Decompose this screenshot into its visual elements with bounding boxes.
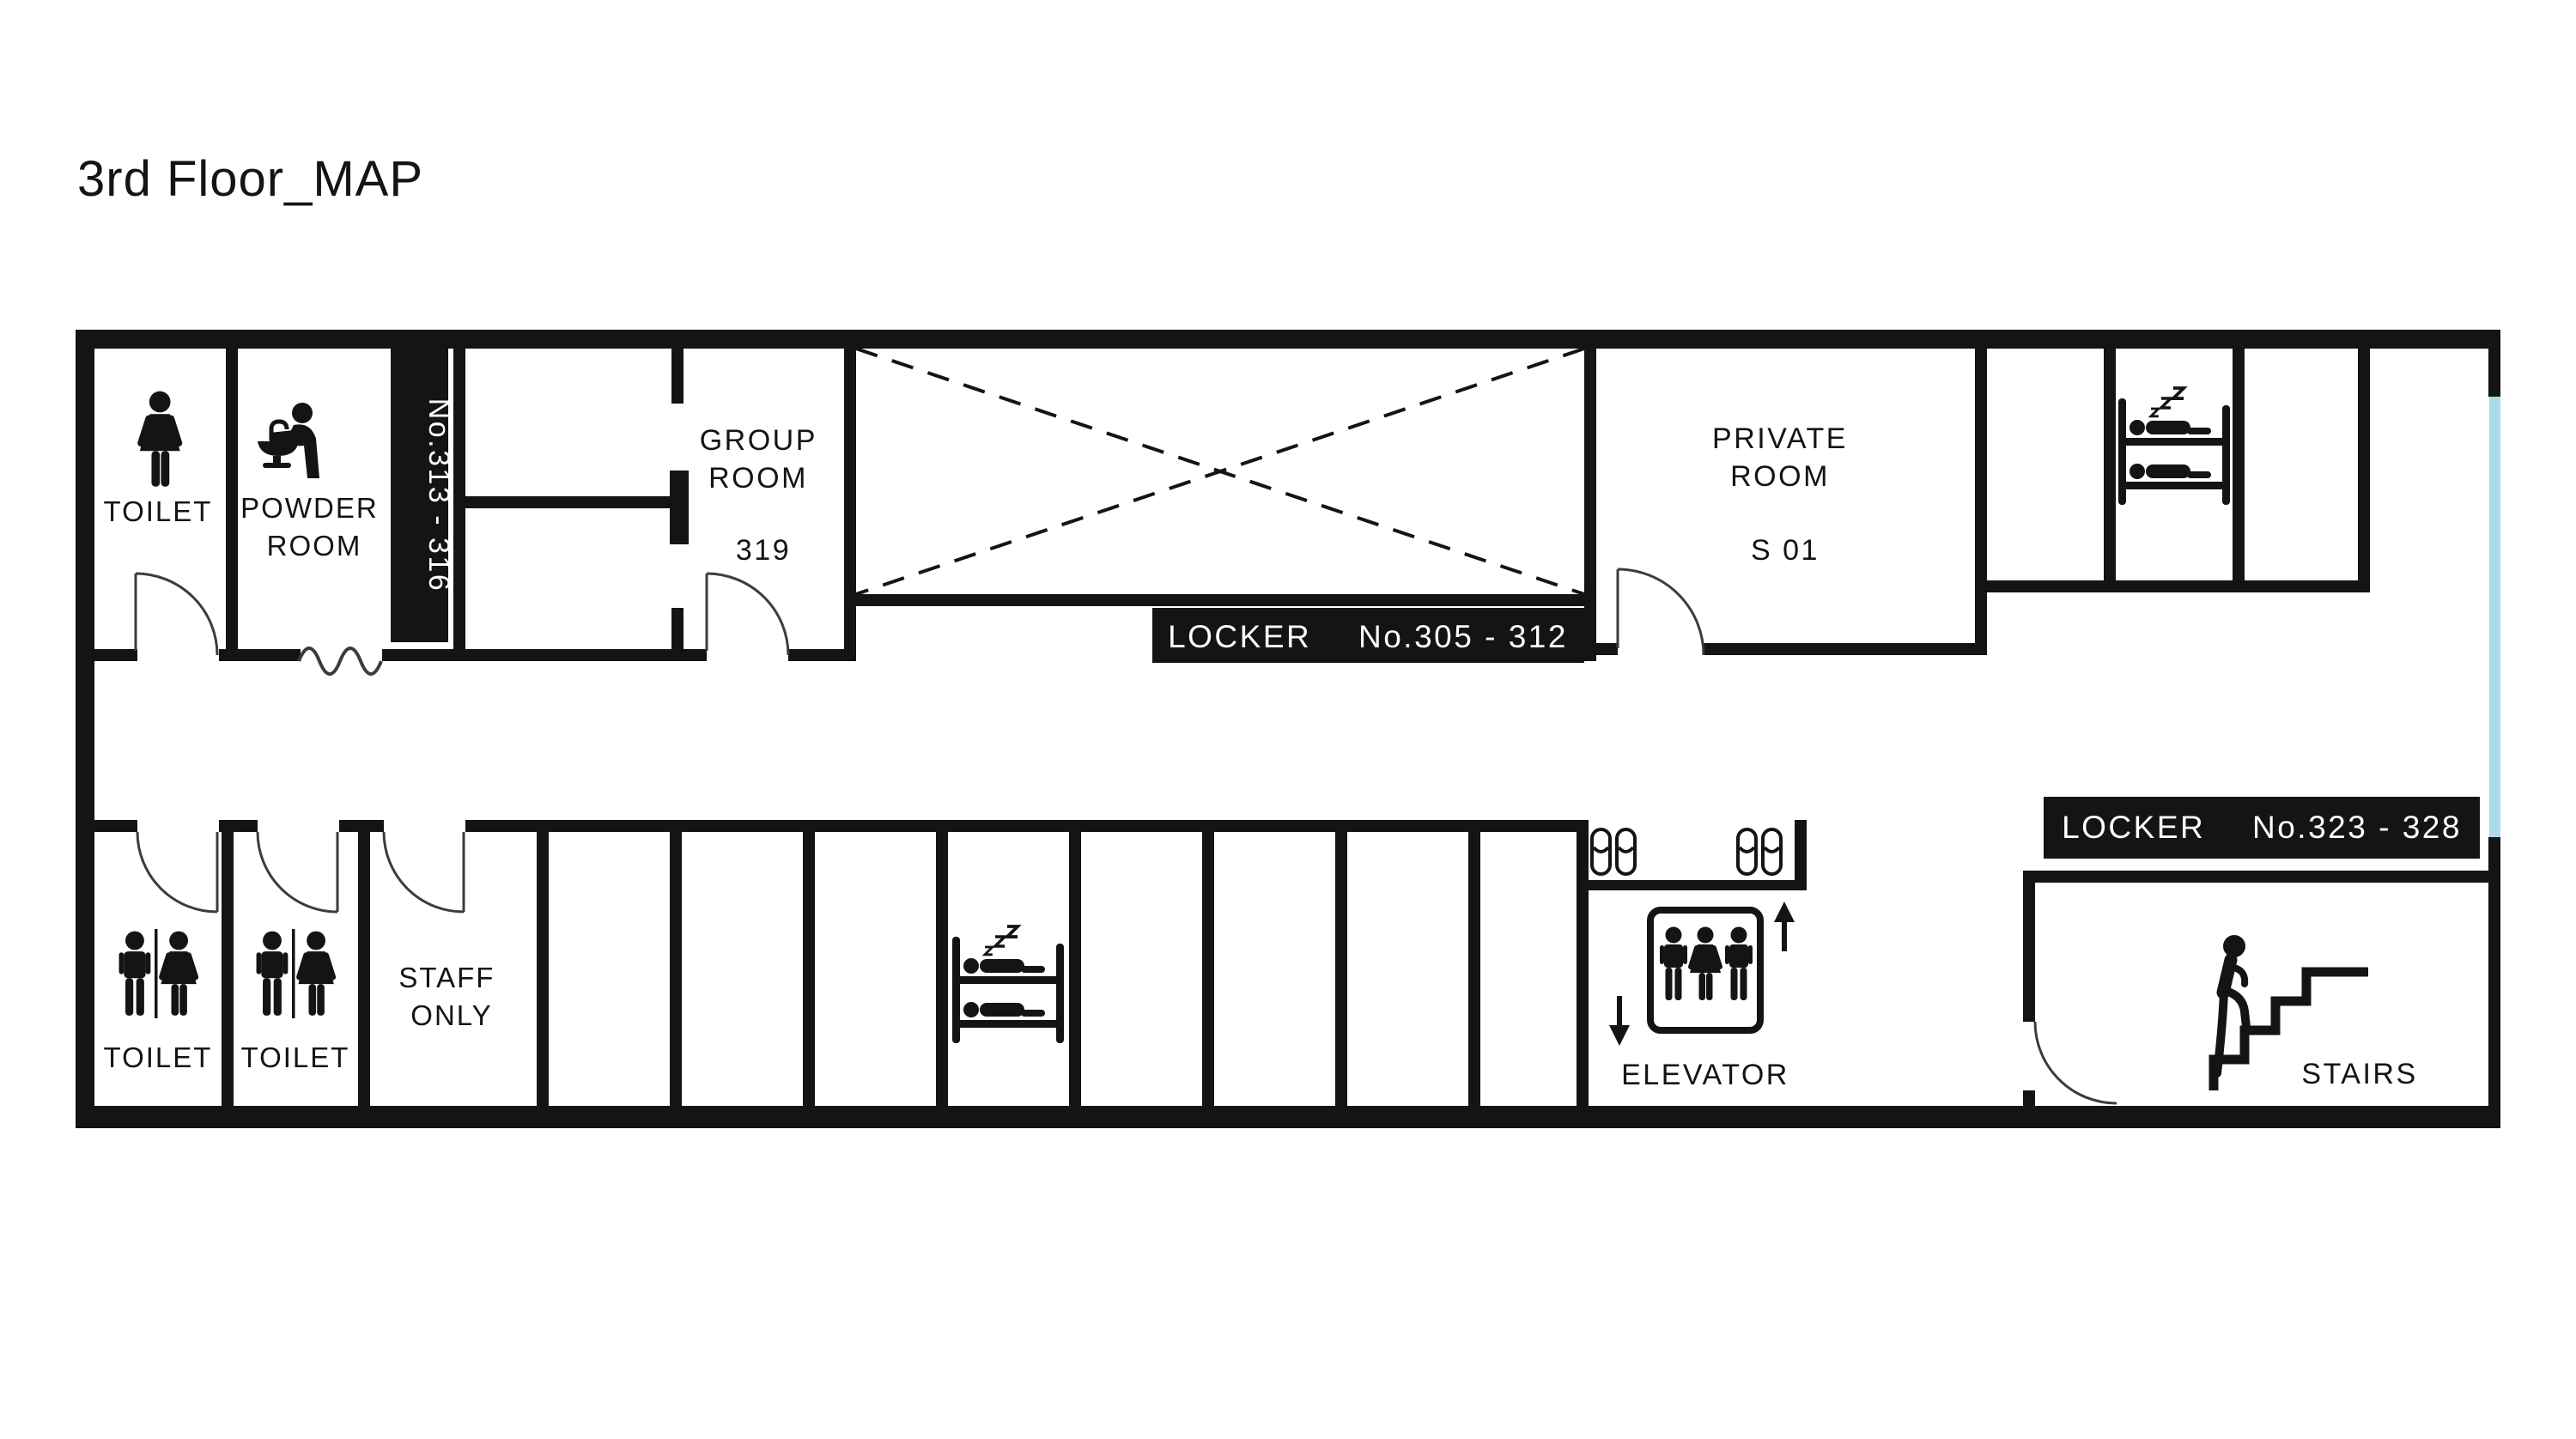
door-toilet-bottom-left <box>137 832 217 912</box>
wall-segment <box>1795 820 1807 890</box>
private-room-label: PRIVATE ROOM S 01 <box>1712 422 1858 567</box>
door-group-room <box>707 574 788 655</box>
capsule-divider <box>1335 832 1347 1106</box>
capsule-divider <box>1202 832 1214 1106</box>
up-arrow-icon <box>1774 902 1795 951</box>
curtain-squiggle <box>299 648 381 674</box>
door-private-room <box>1618 569 1704 655</box>
wall-segment <box>358 820 370 1106</box>
toilet-bottom-left-label: TOILET <box>104 1041 213 1073</box>
wall-segment <box>222 820 234 1106</box>
wall-segment <box>671 349 683 404</box>
locker-323-328-label: LOCKER No.323 - 328 <box>2062 810 2462 845</box>
capsule-divider <box>1069 832 1081 1106</box>
capsule-divider <box>670 832 682 1106</box>
outer-wall-top <box>76 330 2500 349</box>
staff-only-label: STAFF ONLY <box>398 962 504 1031</box>
man-woman-icon <box>119 929 197 1018</box>
door-stairs <box>2035 1022 2117 1103</box>
wall-segment <box>2023 871 2488 883</box>
wall-segment <box>226 349 238 661</box>
wall-segment <box>2023 1090 2035 1106</box>
bunk-bed-icon <box>952 926 1064 1043</box>
down-arrow-icon <box>1609 996 1630 1046</box>
locker-313-316-label: No.313 - 316 <box>422 398 455 593</box>
powder-sink-icon <box>258 403 319 478</box>
group-room-label: GROUP ROOM 319 <box>700 424 828 567</box>
window-strip <box>2489 397 2500 837</box>
wall-segment <box>1704 643 1975 655</box>
wall-segment <box>1596 643 1618 655</box>
outer-wall-left <box>76 330 94 1128</box>
door-toilet-top <box>136 574 217 655</box>
stairs-label: STAIRS <box>2301 1058 2417 1090</box>
wall-segment <box>2023 871 2035 1022</box>
wall-segment <box>1577 820 1589 1106</box>
floor-plan: 3rd Floor_MAP TOILET POWDER ROOM No.313 … <box>0 0 2576 1439</box>
outer-wall-right-lower <box>2488 837 2500 1128</box>
wall-segment <box>1589 880 1807 890</box>
man-woman-icon <box>257 929 334 1018</box>
wall-segment <box>94 820 137 832</box>
wall-segment <box>2358 349 2370 592</box>
crossed-area <box>856 349 1584 594</box>
elevator-icon <box>1650 910 1760 1030</box>
wall-segment <box>1584 349 1596 661</box>
capsule-divider <box>1468 832 1480 1106</box>
page-title: 3rd Floor_MAP <box>77 151 423 207</box>
outer-wall-right-upper <box>2488 330 2500 397</box>
door-toilet-bottom-right <box>258 832 337 912</box>
wall-segment <box>382 649 707 661</box>
elevator-label: ELEVATOR <box>1621 1059 1789 1091</box>
wall-segment <box>2233 349 2245 592</box>
capsule-divider <box>936 832 948 1106</box>
wall-segment <box>219 649 301 661</box>
wall-segment <box>1987 580 2370 592</box>
wall-segment <box>2104 349 2116 592</box>
wall-segment <box>1975 349 1987 655</box>
wall-segment <box>465 820 1589 832</box>
toilet-bottom-right-label: TOILET <box>241 1041 350 1073</box>
wall-segment <box>671 608 683 661</box>
wall-segment <box>670 471 689 544</box>
outer-wall-bottom <box>76 1106 2500 1128</box>
slippers-icon <box>1738 829 1781 874</box>
wall-segment <box>844 594 1596 606</box>
locker-305-312-label: LOCKER No.305 - 312 <box>1168 619 1568 654</box>
bunk-bed-icon <box>2118 388 2230 505</box>
capsule-divider <box>803 832 815 1106</box>
wall-segment <box>844 349 856 661</box>
wall-segment <box>465 496 683 508</box>
door-staff-only <box>384 832 464 912</box>
powder-room-label: POWDER ROOM <box>240 492 388 562</box>
capsule-divider <box>537 832 549 1106</box>
woman-icon <box>140 392 180 487</box>
wall-segment <box>94 649 137 661</box>
slippers-icon <box>1592 829 1635 874</box>
toilet-top-label: TOILET <box>104 495 213 527</box>
